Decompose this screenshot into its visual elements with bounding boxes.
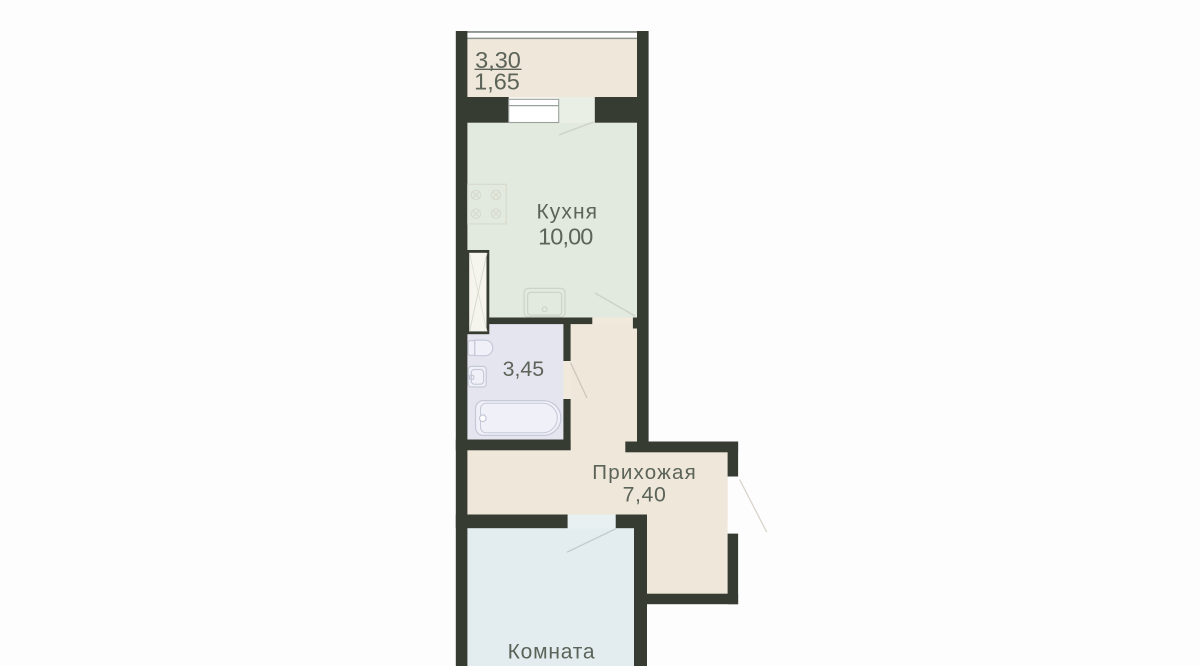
svg-text:3,45: 3,45: [503, 357, 544, 381]
svg-text:7,40: 7,40: [623, 483, 667, 507]
svg-text:10,00: 10,00: [538, 224, 593, 250]
svg-text:Комната: Комната: [508, 641, 596, 664]
svg-text:Кухня: Кухня: [536, 201, 598, 224]
svg-text:1,65: 1,65: [474, 68, 520, 94]
svg-text:Прихожая: Прихожая: [592, 461, 697, 484]
